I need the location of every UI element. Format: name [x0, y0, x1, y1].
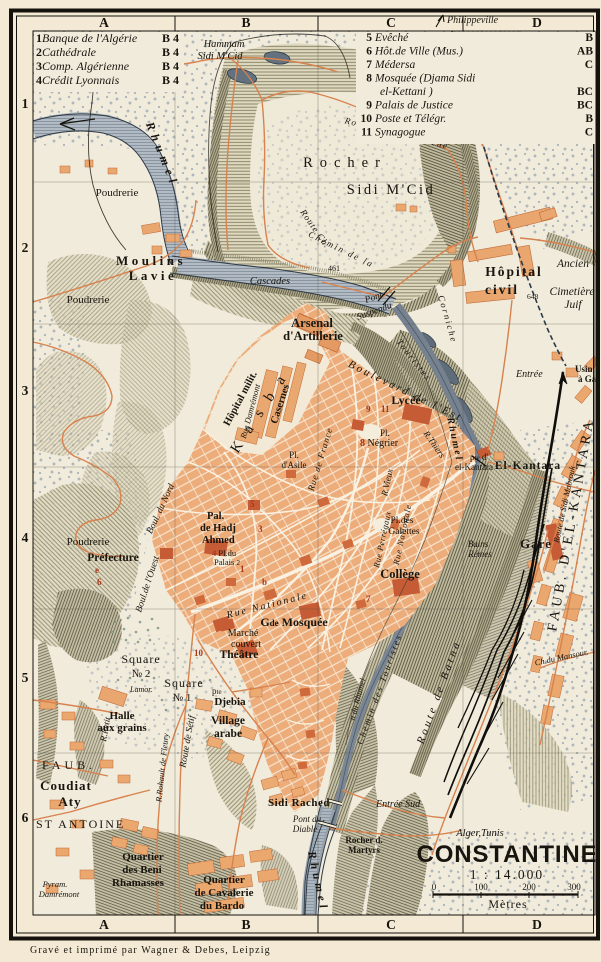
svg-text:№ 2: № 2 [132, 668, 151, 680]
svg-text:8 Négrier: 8 Négrier [360, 438, 399, 449]
svg-text:Rémes: Rémes [467, 549, 492, 559]
svg-text:Poste et Télégr.: Poste et Télégr. [374, 113, 446, 125]
svg-text:6: 6 [366, 46, 372, 58]
svg-text:648: 648 [527, 292, 539, 301]
svg-text:B 4: B 4 [162, 73, 179, 87]
svg-text:6: 6 [22, 810, 29, 825]
svg-text:des Beni: des Beni [122, 864, 161, 876]
svg-text:FAUB.: FAUB. [42, 758, 96, 772]
svg-text:C: C [386, 917, 396, 932]
svg-text:Rocher: Rocher [303, 155, 387, 171]
svg-text:B: B [241, 15, 250, 30]
svg-text:Marché: Marché [228, 628, 259, 639]
svg-text:Poudrerie: Poudrerie [67, 536, 110, 548]
svg-text:Pont du: Pont du [292, 814, 322, 824]
svg-text:8: 8 [366, 73, 372, 85]
svg-text:Théâtre: Théâtre [220, 649, 259, 661]
svg-text:B: B [241, 917, 250, 932]
svg-text:10: 10 [194, 648, 204, 658]
svg-text:Pal.: Pal. [207, 511, 225, 522]
svg-text:Moulins: Moulins [116, 253, 186, 268]
svg-text:Usin: Usin [575, 364, 593, 374]
svg-text:Cascades: Cascades [250, 276, 290, 287]
svg-text:Square: Square [164, 676, 203, 690]
svg-text:Sidi M'Cid: Sidi M'Cid [197, 51, 243, 62]
svg-text:1 : 14.000: 1 : 14.000 [470, 867, 544, 882]
svg-text:Djebia: Djebia [214, 696, 246, 708]
svg-text:Bains: Bains [468, 539, 489, 549]
svg-text:Arsenal: Arsenal [291, 316, 333, 330]
svg-text:Philippeville: Philippeville [446, 15, 499, 26]
svg-text:Martyrs: Martyrs [348, 845, 380, 855]
svg-text:el-Kettani ): el-Kettani ) [380, 86, 433, 98]
svg-text:6: 6 [97, 577, 102, 587]
svg-text:2Cathédrale: 2Cathédrale [36, 45, 97, 59]
svg-text:Poudrerie: Poudrerie [67, 294, 110, 306]
svg-text:7: 7 [366, 59, 372, 71]
svg-text:Lavie: Lavie [129, 268, 178, 283]
svg-text:Alger,Tunis: Alger,Tunis [455, 828, 504, 839]
svg-text:Rhamasses: Rhamasses [112, 877, 165, 889]
svg-text:11: 11 [361, 127, 372, 139]
svg-text:pte d': pte d' [470, 452, 488, 462]
svg-text:3: 3 [22, 383, 29, 398]
svg-text:Quartier: Quartier [203, 874, 245, 886]
svg-text:Cimetière: Cimetière [550, 286, 595, 298]
svg-text:7: 7 [366, 594, 371, 604]
svg-text:civil: civil [485, 282, 519, 297]
svg-text:A: A [99, 15, 109, 30]
svg-text:5: 5 [366, 32, 372, 44]
svg-text:Aty: Aty [58, 794, 81, 809]
svg-text:e: e [95, 565, 99, 575]
svg-text:Coudiat: Coudiat [40, 778, 92, 793]
svg-text:Lamor.: Lamor. [129, 685, 152, 694]
svg-text:d'Asile: d'Asile [281, 460, 306, 470]
svg-text:4Crédit Lyonnais: 4Crédit Lyonnais [36, 73, 120, 87]
svg-text:B 4: B 4 [162, 59, 179, 73]
svg-text:Sidi M'Cid: Sidi M'Cid [347, 182, 435, 198]
svg-text:pte: pte [212, 686, 222, 696]
svg-text:11: 11 [381, 404, 390, 414]
svg-text:Evêché: Evêché [374, 32, 409, 44]
svg-text:arabe: arabe [214, 728, 242, 740]
svg-text:Gare: Gare [520, 536, 552, 551]
svg-text:CONSTANTINE: CONSTANTINE [417, 841, 598, 868]
svg-text:Juif: Juif [564, 299, 583, 311]
svg-text:Palais 2: Palais 2 [214, 557, 240, 567]
svg-text:9: 9 [366, 100, 372, 112]
svg-text:1Banque de l'Algérie: 1Banque de l'Algérie [36, 31, 138, 45]
svg-text:461: 461 [328, 264, 340, 273]
svg-text:2: 2 [22, 240, 29, 255]
svg-text:C: C [585, 59, 593, 71]
svg-text:Collège: Collège [380, 567, 420, 581]
svg-text:Médersa: Médersa [374, 59, 415, 71]
svg-text:AB: AB [577, 46, 593, 58]
svg-text:5: 5 [250, 499, 255, 509]
svg-text:B: B [585, 32, 593, 44]
svg-text:3Comp. Algérienne: 3Comp. Algérienne [36, 59, 130, 73]
svg-text:du Bardo: du Bardo [200, 900, 245, 912]
svg-text:D: D [532, 15, 542, 30]
svg-text:Poudrerie: Poudrerie [96, 187, 139, 199]
svg-text:B 4: B 4 [162, 31, 179, 45]
svg-text:Hammam: Hammam [203, 39, 245, 50]
svg-text:Entrée Sud: Entrée Sud [375, 799, 421, 810]
svg-text:Préfecture: Préfecture [87, 552, 139, 564]
svg-text:Rocher d.: Rocher d. [345, 835, 382, 845]
svg-text:Hôpital: Hôpital [485, 264, 543, 279]
svg-text:Pl.: Pl. [380, 428, 390, 438]
svg-text:ST ANTOINE: ST ANTOINE [36, 817, 125, 831]
svg-text:C: C [585, 127, 593, 139]
svg-text:BC: BC [577, 100, 593, 112]
svg-text:Pl.: Pl. [289, 450, 299, 460]
svg-text:de Hadj: de Hadj [200, 523, 236, 534]
svg-text:Village: Village [211, 715, 245, 727]
svg-text:B: B [585, 113, 593, 125]
svg-text:10: 10 [361, 113, 373, 125]
svg-text:5: 5 [22, 670, 29, 685]
svg-text:9: 9 [366, 404, 371, 414]
svg-text:Halle: Halle [109, 710, 134, 722]
svg-text:Ancien: Ancien [556, 258, 589, 270]
svg-text:El-Kantara: El-Kantara [495, 460, 561, 472]
svg-text:Ahmed: Ahmed [202, 535, 235, 546]
svg-text:Diable: Diable [292, 824, 318, 834]
svg-text:№ 1: № 1 [173, 692, 192, 704]
svg-text:b: b [262, 577, 267, 587]
svg-text:200: 200 [522, 882, 536, 892]
svg-text:D: D [532, 917, 542, 932]
svg-text:Mosquée (Djama Sidi: Mosquée (Djama Sidi [374, 73, 475, 85]
svg-text:Square: Square [121, 652, 160, 666]
svg-text:Gravé et imprimé par Wagner &: Gravé et imprimé par Wagner & Debes, Lei… [30, 945, 271, 956]
svg-text:C: C [386, 15, 396, 30]
svg-text:1: 1 [22, 96, 29, 111]
svg-text:B 4: B 4 [162, 45, 179, 59]
svg-text:d'Artillerie: d'Artillerie [283, 329, 343, 343]
svg-text:de Cavalerie: de Cavalerie [195, 887, 254, 899]
svg-text:Quartier: Quartier [122, 851, 164, 863]
svg-text:3: 3 [258, 524, 263, 534]
svg-text:0: 0 [432, 882, 437, 892]
svg-text:BC: BC [577, 86, 593, 98]
svg-text:Entrée: Entrée [515, 369, 543, 380]
svg-text:100: 100 [474, 882, 488, 892]
svg-text:4: 4 [22, 530, 29, 545]
svg-text:Hôt.de Ville (Mus.): Hôt.de Ville (Mus.) [374, 46, 463, 58]
svg-text:Mètres: Mètres [488, 897, 527, 911]
svg-text:300: 300 [567, 882, 581, 892]
svg-text:Damrémont: Damrémont [38, 889, 80, 899]
svg-text:A: A [99, 917, 109, 932]
svg-text:Sidi Rached: Sidi Rached [268, 797, 330, 809]
svg-text:Pyram.: Pyram. [42, 879, 68, 889]
svg-text:Lycée: Lycée [391, 393, 421, 407]
svg-text:1: 1 [240, 564, 245, 574]
svg-text:Palais de Justice: Palais de Justice [374, 100, 453, 112]
svg-text:Synagogue: Synagogue [375, 127, 425, 139]
